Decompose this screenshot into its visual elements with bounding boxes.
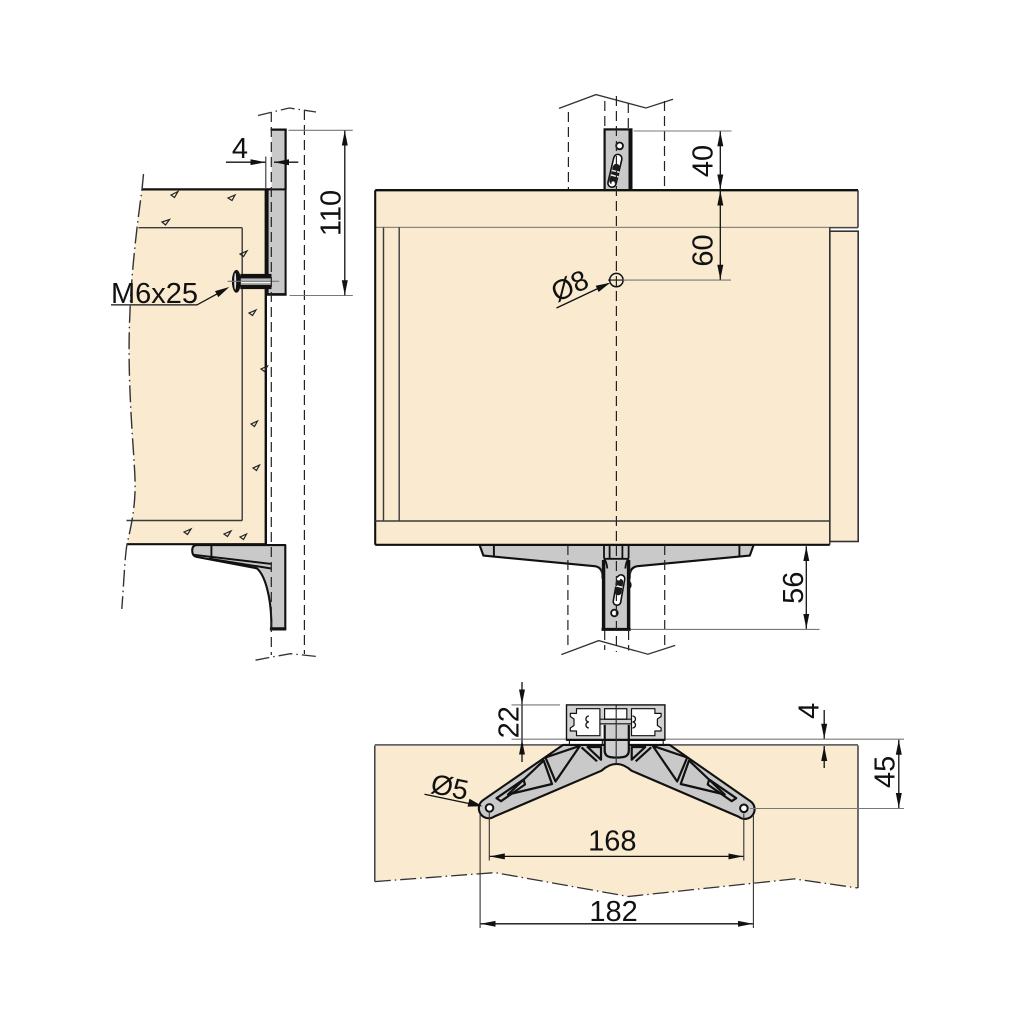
svg-text:22: 22 xyxy=(494,706,526,738)
svg-text:4: 4 xyxy=(232,133,248,165)
svg-text:4: 4 xyxy=(794,703,826,719)
svg-text:56: 56 xyxy=(778,572,810,604)
svg-text:60: 60 xyxy=(688,234,720,266)
svg-text:45: 45 xyxy=(870,756,902,788)
svg-text:182: 182 xyxy=(589,896,637,928)
svg-text:168: 168 xyxy=(588,826,636,858)
svg-text:110: 110 xyxy=(316,190,348,236)
svg-text:40: 40 xyxy=(688,145,720,177)
